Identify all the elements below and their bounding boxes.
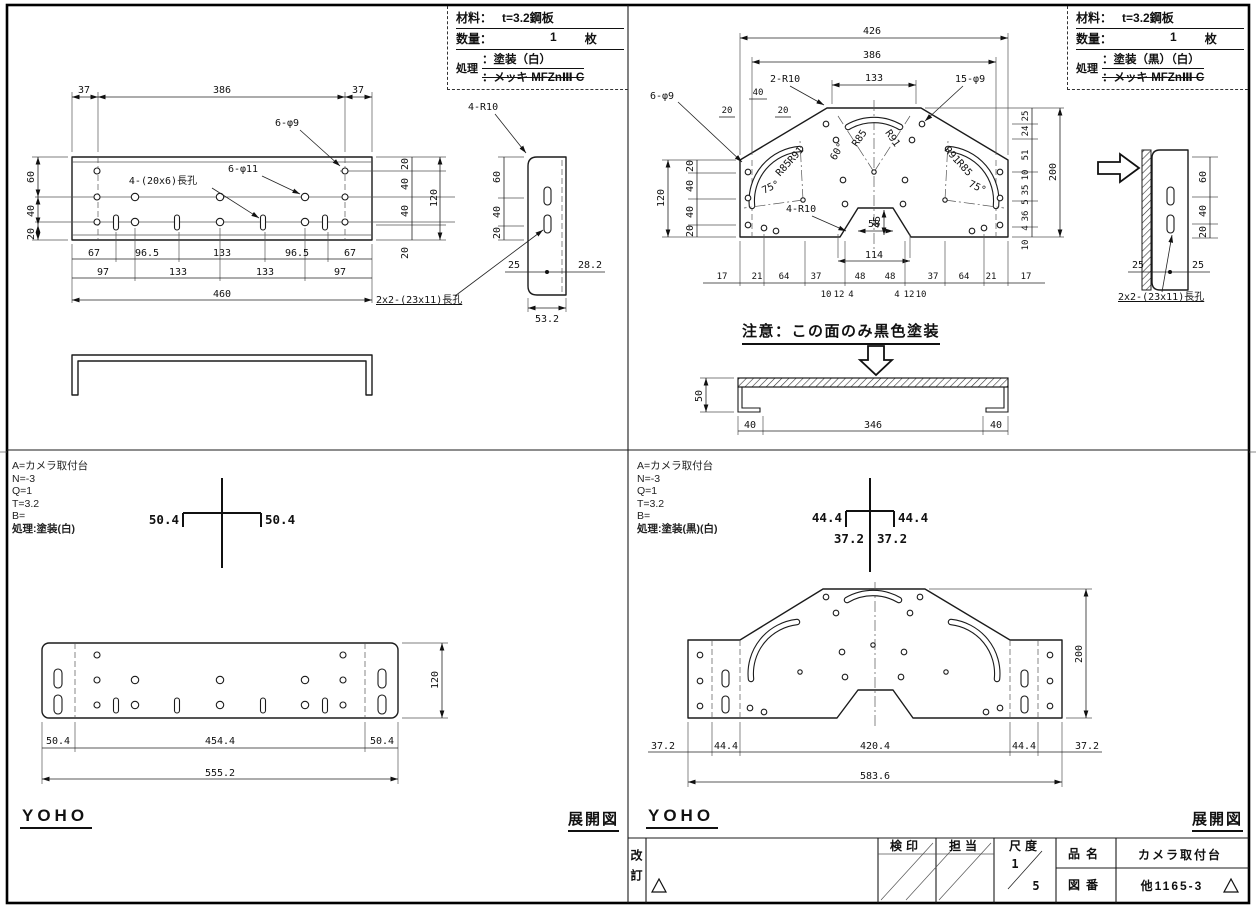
dim-label: 40 <box>400 205 411 217</box>
material-value: t=3.2鋼板 <box>1122 9 1174 26</box>
bend-dim: 44.4 <box>898 510 928 525</box>
dim-label: 17 <box>1021 272 1032 282</box>
dim-label: 37 <box>78 85 90 96</box>
dim-label: 37 <box>928 272 939 282</box>
drawing-svg: 37 386 37 6-φ9 6-φ11 4-(20x6)長孔 60 40 20… <box>0 0 1256 911</box>
dim-label: 40 <box>753 88 764 98</box>
dim-label: 20 <box>685 225 696 237</box>
process-paint: ：塗装（白） <box>482 51 584 69</box>
right-flat-view: 200 37.2 44.4 420.4 44.4 37.2 583.6 <box>648 582 1102 787</box>
dim-label: 40 <box>26 205 37 217</box>
dim-label: 25 <box>1192 260 1204 271</box>
dim-label: 20 <box>722 106 733 116</box>
drawing-no-value: 他1165-3 <box>1140 878 1204 893</box>
bend-dim: 50.4 <box>149 512 179 527</box>
charge-label: 担当 <box>949 838 981 853</box>
dim-label: 21 <box>986 272 997 282</box>
flat-pattern-label: 展開図 <box>1192 808 1243 832</box>
quantity-row: 数量： 1 枚 <box>456 29 624 50</box>
dim-label: 114 <box>865 250 883 261</box>
company-logo: YOHO <box>20 806 92 829</box>
dim-label: 37 <box>352 85 364 96</box>
dim-label: 346 <box>864 420 882 431</box>
dim-label: 50 <box>694 390 705 402</box>
meta-parameters: A=カメラ取付台 N=-3 Q=1 T=3.2 B= <box>12 460 88 523</box>
dim-label: 4 <box>1021 225 1031 230</box>
dim-label: 12 <box>904 290 915 300</box>
quantity-label: 数量： <box>456 30 492 47</box>
process-label: 処理 <box>1076 60 1098 76</box>
hole-callout: 6-φ9 <box>275 118 299 129</box>
dim-label: 10 <box>1021 170 1031 181</box>
check-label: 検印 <box>890 838 922 853</box>
dim-label: 21 <box>752 272 763 282</box>
process-plating-struck: ：メッキ MFZnⅢ C <box>1102 69 1204 85</box>
dim-label: 45 <box>872 216 883 228</box>
dim-label: 120 <box>430 671 441 689</box>
angle-label: 60° <box>829 141 848 162</box>
right-meta-block: A=カメラ取付台 N=-3 Q=1 T=3.2 B= 処理:塗装(黒)(白) <box>637 460 717 535</box>
part-name-label: 品名 <box>1068 846 1104 861</box>
quantity-row: 数量： 1 枚 <box>1076 29 1244 50</box>
dim-label: 583.6 <box>860 771 890 782</box>
dim-label: 4 <box>894 290 899 300</box>
dim-label: 17 <box>717 272 728 282</box>
material-label: 材料： <box>1076 9 1112 26</box>
process-paint: ：塗装（黒）（白） <box>1102 51 1204 69</box>
right-material-block: 材料： t=3.2鋼板 数量： 1 枚 処理 ：塗装（黒）（白） ：メッキ MF… <box>1067 6 1248 90</box>
dim-label: 35 <box>1021 185 1031 196</box>
process-row: 処理 ：塗装（白） ：メッキ MFZnⅢ C <box>456 50 624 85</box>
dim-label: 44.4 <box>1012 741 1036 752</box>
dim-label: 40 <box>400 178 411 190</box>
dim-label: 50.4 <box>370 736 394 747</box>
bend-dim: 44.4 <box>812 510 842 525</box>
dim-label: 37.2 <box>1075 741 1099 752</box>
dim-label: 25 <box>1132 260 1144 271</box>
dim-label: 20 <box>492 227 503 239</box>
quantity-unit: 枚 <box>1205 30 1217 47</box>
angle-label: 75° <box>967 179 988 197</box>
direction-arrow-icon <box>860 346 892 375</box>
dim-label: 133 <box>865 73 883 84</box>
left-side-view: 4-R10 60 40 20 25 28.2 53.2 <box>468 102 605 325</box>
dim-label: 64 <box>959 272 970 282</box>
dim-label: 20 <box>400 158 411 170</box>
right-side-view: 60 40 20 25 25 2x2-(23x11)長孔 <box>1098 150 1218 303</box>
dim-label: 96.5 <box>135 248 159 259</box>
direction-arrow-icon <box>1098 154 1139 182</box>
scale-numerator: 1 <box>1011 857 1018 871</box>
meta-process: 処理:塗装(黒)(白) <box>637 523 717 536</box>
dim-label: 454.4 <box>205 736 235 747</box>
paint-note: 注意：この面のみ黒色塗装 <box>742 320 940 345</box>
dim-label: 10 <box>1021 240 1031 251</box>
dim-label: 25 <box>1021 111 1031 122</box>
dim-label: 64 <box>779 272 790 282</box>
dim-label: 426 <box>863 26 881 37</box>
dim-label: 60 <box>26 171 37 183</box>
radius-callout: 4-R10 <box>468 102 498 113</box>
right-bend-mark: 44.4 44.4 37.2 37.2 <box>812 478 928 572</box>
dim-label: 120 <box>429 189 440 207</box>
left-plan-view: 37 386 37 6-φ9 6-φ11 4-(20x6)長孔 60 40 20… <box>26 85 543 306</box>
scale-label: 尺度 <box>1009 838 1041 853</box>
left-meta-block: A=カメラ取付台 N=-3 Q=1 T=3.2 B= 処理:塗装(白) <box>12 460 88 535</box>
bend-dim: 37.2 <box>834 531 864 546</box>
right-plan-view: R85 R91 60° R85 R91 75° R91 R85 75° 426 … <box>650 26 1064 300</box>
dim-label: 5 <box>1021 199 1031 204</box>
material-row: 材料： t=3.2鋼板 <box>456 8 624 29</box>
dim-label: 40 <box>685 180 696 192</box>
dim-label: 25 <box>508 260 520 271</box>
meta-parameters: A=カメラ取付台 N=-3 Q=1 T=3.2 B= <box>637 460 717 523</box>
hole-callout: 15-φ9 <box>955 74 985 85</box>
dim-label: 40 <box>990 420 1002 431</box>
dim-label: 36 <box>1021 211 1031 222</box>
radius-label: R85 <box>850 128 869 149</box>
revision-label: 改訂 <box>628 840 645 898</box>
dim-label: 12 <box>834 290 845 300</box>
hole-callout: 2x2-(23x11)長孔 <box>376 294 462 306</box>
dim-label: 50.4 <box>46 736 70 747</box>
dim-label: 133 <box>256 267 274 278</box>
left-bend-mark: 50.4 50.4 <box>149 478 295 568</box>
quantity-value: 1 <box>550 30 557 47</box>
dim-label: 53.2 <box>535 314 559 325</box>
quantity-unit: 枚 <box>585 30 597 47</box>
dim-label: 20 <box>26 228 37 240</box>
bend-dim: 37.2 <box>877 531 907 546</box>
left-flat-view: 120 50.4 454.4 50.4 555.2 <box>42 643 448 784</box>
dim-label: 60 <box>1198 171 1209 183</box>
dim-label: 420.4 <box>860 741 890 752</box>
dim-label: 48 <box>855 272 866 282</box>
drawing-no-label: 図番 <box>1068 877 1104 892</box>
dim-label: 67 <box>88 248 100 259</box>
radius-callout: 2-R10 <box>770 74 800 85</box>
dim-label: 48 <box>885 272 896 282</box>
dim-label: 37.2 <box>651 741 675 752</box>
radius-callout: 4-R10 <box>786 204 816 215</box>
dim-label: 97 <box>97 267 109 278</box>
dim-label: 51 <box>1021 150 1031 161</box>
quantity-value: 1 <box>1170 30 1177 47</box>
right-section-view: 50 40 346 40 <box>694 346 1008 435</box>
bend-dim: 50.4 <box>265 512 295 527</box>
dim-label: 200 <box>1074 645 1085 663</box>
hole-callout: 6-φ9 <box>650 91 674 102</box>
material-value: t=3.2鋼板 <box>502 9 554 26</box>
dim-label: 386 <box>213 85 231 96</box>
dim-label: 97 <box>334 267 346 278</box>
dim-label: 40 <box>492 206 503 218</box>
dim-label: 10 <box>916 290 927 300</box>
dim-label: 24 <box>1021 126 1031 137</box>
dim-label: 67 <box>344 248 356 259</box>
quantity-label: 数量： <box>1076 30 1112 47</box>
hole-callout: 6-φ11 <box>228 164 258 175</box>
dim-label: 96.5 <box>285 248 309 259</box>
dim-label: 37 <box>811 272 822 282</box>
dim-label: 44.4 <box>714 741 738 752</box>
dim-label: 20 <box>400 247 411 259</box>
dim-label: 20 <box>685 160 696 172</box>
dim-label: 555.2 <box>205 768 235 779</box>
dim-label: 460 <box>213 289 231 300</box>
dim-label: 28.2 <box>578 260 602 271</box>
hole-callout: 4-(20x6)長孔 <box>129 175 197 187</box>
dim-label: 120 <box>656 189 667 207</box>
process-label: 処理 <box>456 60 478 76</box>
dim-label: 4 <box>848 290 853 300</box>
radius-label: R91 <box>882 128 901 149</box>
dim-label: 60 <box>492 171 503 183</box>
sheet-frame <box>0 5 1256 903</box>
company-logo: YOHO <box>646 806 718 829</box>
dim-label: 20 <box>1198 226 1209 238</box>
revision-triangle-icon <box>652 879 666 892</box>
material-label: 材料： <box>456 9 492 26</box>
dim-label: 200 <box>1048 163 1059 181</box>
scale-denominator: 5 <box>1032 879 1039 893</box>
meta-process: 処理:塗装(白) <box>12 523 88 536</box>
dim-label: 133 <box>213 248 231 259</box>
angle-label: 75° <box>760 179 781 197</box>
process-plating-struck: ：メッキ MFZnⅢ C <box>482 69 584 85</box>
dim-label: 40 <box>685 206 696 218</box>
dim-label: 133 <box>169 267 187 278</box>
part-name-value: カメラ取付台 <box>1138 847 1222 862</box>
dim-label: 40 <box>744 420 756 431</box>
left-front-view <box>72 355 372 395</box>
material-row: 材料： t=3.2鋼板 <box>1076 8 1244 29</box>
hole-callout: 2x2-(23x11)長孔 <box>1118 291 1204 303</box>
sheet-triangle-icon <box>1224 879 1238 892</box>
process-row: 処理 ：塗装（黒）（白） ：メッキ MFZnⅢ C <box>1076 50 1244 85</box>
dim-label: 10 <box>821 290 832 300</box>
left-material-block: 材料： t=3.2鋼板 数量： 1 枚 処理 ：塗装（白） ：メッキ MFZnⅢ… <box>447 6 628 90</box>
flat-pattern-label: 展開図 <box>568 808 619 832</box>
dim-label: 20 <box>778 106 789 116</box>
dim-label: 40 <box>1198 205 1209 217</box>
dim-label: 386 <box>863 50 881 61</box>
drawing-sheet: 37 386 37 6-φ9 6-φ11 4-(20x6)長孔 60 40 20… <box>0 0 1256 911</box>
